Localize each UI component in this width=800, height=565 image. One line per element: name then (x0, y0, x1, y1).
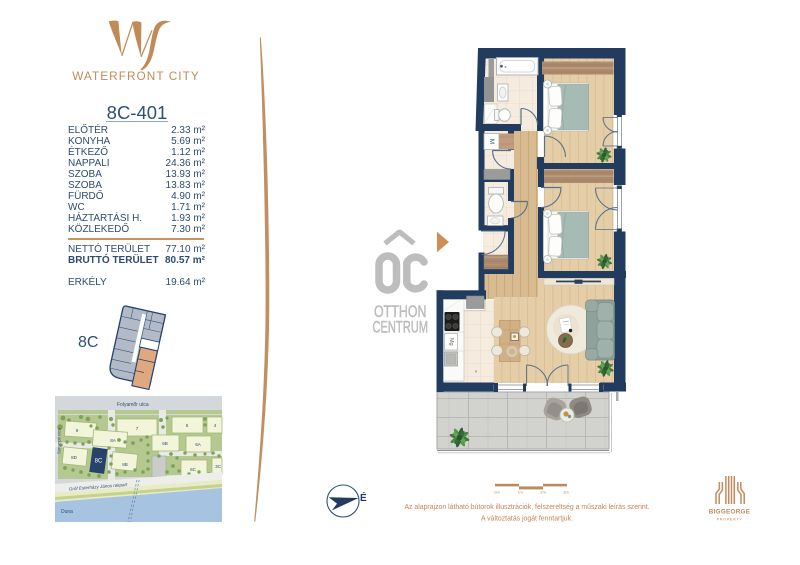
svg-text:M: M (488, 139, 495, 144)
svg-text:2m: 2m (540, 490, 546, 495)
svg-text:8B: 8B (122, 462, 128, 467)
svg-text:4: 4 (214, 423, 217, 428)
svg-text:1m: 1m (517, 490, 523, 495)
svg-text:A változtatás jogát fenntartju: A változtatás jogát fenntartjuk. (481, 516, 573, 523)
svg-text:BIGGEORGE: BIGGEORGE (709, 509, 751, 516)
svg-text:8D: 8D (71, 455, 78, 460)
svg-text:7: 7 (136, 426, 139, 431)
svg-text:9: 9 (76, 428, 79, 433)
svg-text:Duna: Duna (61, 509, 73, 515)
svg-text:0m: 0m (494, 490, 500, 495)
svg-text:É: É (360, 491, 367, 504)
svg-text:5: 5 (186, 423, 189, 428)
svg-text:6A: 6A (195, 442, 202, 447)
svg-text:*: * (475, 370, 478, 377)
svg-text:8C: 8C (95, 459, 103, 465)
svg-text:CENTRUM: CENTRUM (373, 319, 429, 337)
svg-text:Mg: Mg (448, 338, 454, 346)
svg-text:8A: 8A (110, 438, 117, 443)
svg-text:Folyamőr utca: Folyamőr utca (117, 402, 149, 408)
svg-text:6C: 6C (190, 467, 197, 472)
svg-text:PROPERTY: PROPERTY (717, 517, 743, 522)
svg-text:3C: 3C (215, 464, 222, 469)
svg-text:3m: 3m (563, 490, 569, 495)
svg-text:Az alaprajzon látható bútorok: Az alaprajzon látható bútorok illusztrác… (404, 504, 649, 511)
svg-text:6B: 6B (162, 441, 168, 446)
svg-text:Sorompó utca: Sorompó utca (57, 427, 62, 454)
